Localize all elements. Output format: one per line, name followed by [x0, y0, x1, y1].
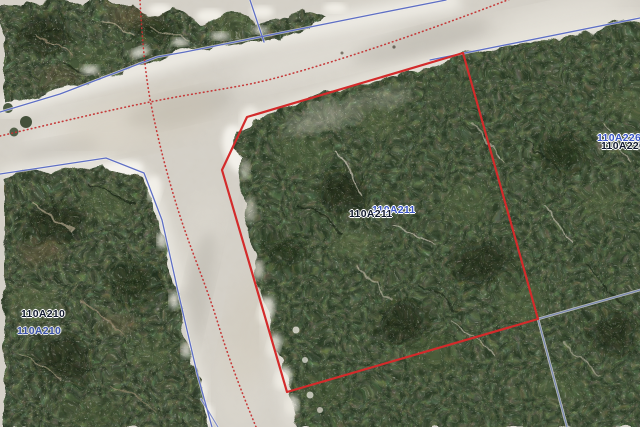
- map-viewport[interactable]: 110A211 110A211 110A210 110A210 110A226 …: [0, 0, 640, 427]
- aerial-basemap: [0, 0, 640, 427]
